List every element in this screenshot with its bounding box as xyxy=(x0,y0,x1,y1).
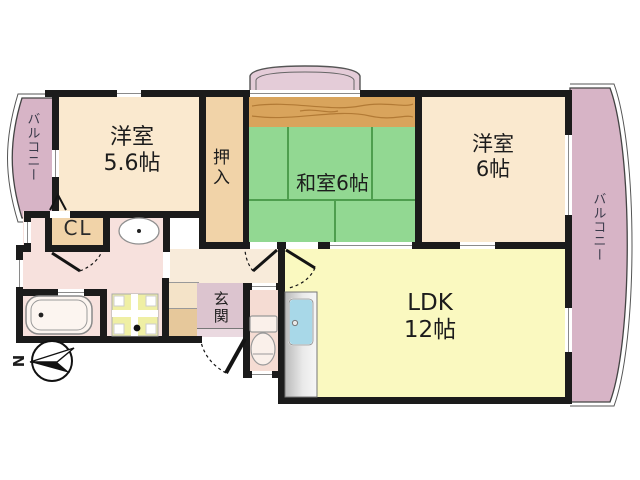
label-ldk-size: 12帖 xyxy=(404,317,456,343)
label-washitsu: 和室6帖 xyxy=(255,172,410,196)
label-balcony-left: バルコニー xyxy=(24,112,39,182)
label-western2-name: 洋室 xyxy=(472,132,514,156)
label-ldk: LDK 12帖 xyxy=(355,290,505,344)
label-cl: CL xyxy=(55,217,101,241)
washbasin xyxy=(119,218,159,244)
label-western2-size: 6帖 xyxy=(476,157,510,181)
label-western1-size: 5.6帖 xyxy=(104,151,161,176)
label-western1: 洋室 5.6帖 xyxy=(62,125,202,177)
label-western1-name: 洋室 xyxy=(110,125,154,150)
toilet xyxy=(250,316,277,365)
floor-plan: 洋室 5.6帖 押入 和室6帖 洋室 6帖 LDK 12帖 CL 玄関 バルコニ… xyxy=(0,0,640,480)
label-ldk-name: LDK xyxy=(407,290,453,316)
label-genkan: 玄関 xyxy=(211,291,229,325)
washing-machine-pan xyxy=(112,294,158,336)
label-oshiire: 押入 xyxy=(209,148,229,188)
label-western2: 洋室 6帖 xyxy=(423,132,563,182)
bathtub xyxy=(26,296,92,334)
compass-icon xyxy=(30,341,74,381)
folding-door-icon xyxy=(50,195,66,210)
label-balcony-right: バルコニー xyxy=(590,192,605,262)
kitchen-sink xyxy=(285,292,317,397)
compass-north-label: N xyxy=(6,351,26,371)
wood-grain-icon xyxy=(252,104,413,118)
